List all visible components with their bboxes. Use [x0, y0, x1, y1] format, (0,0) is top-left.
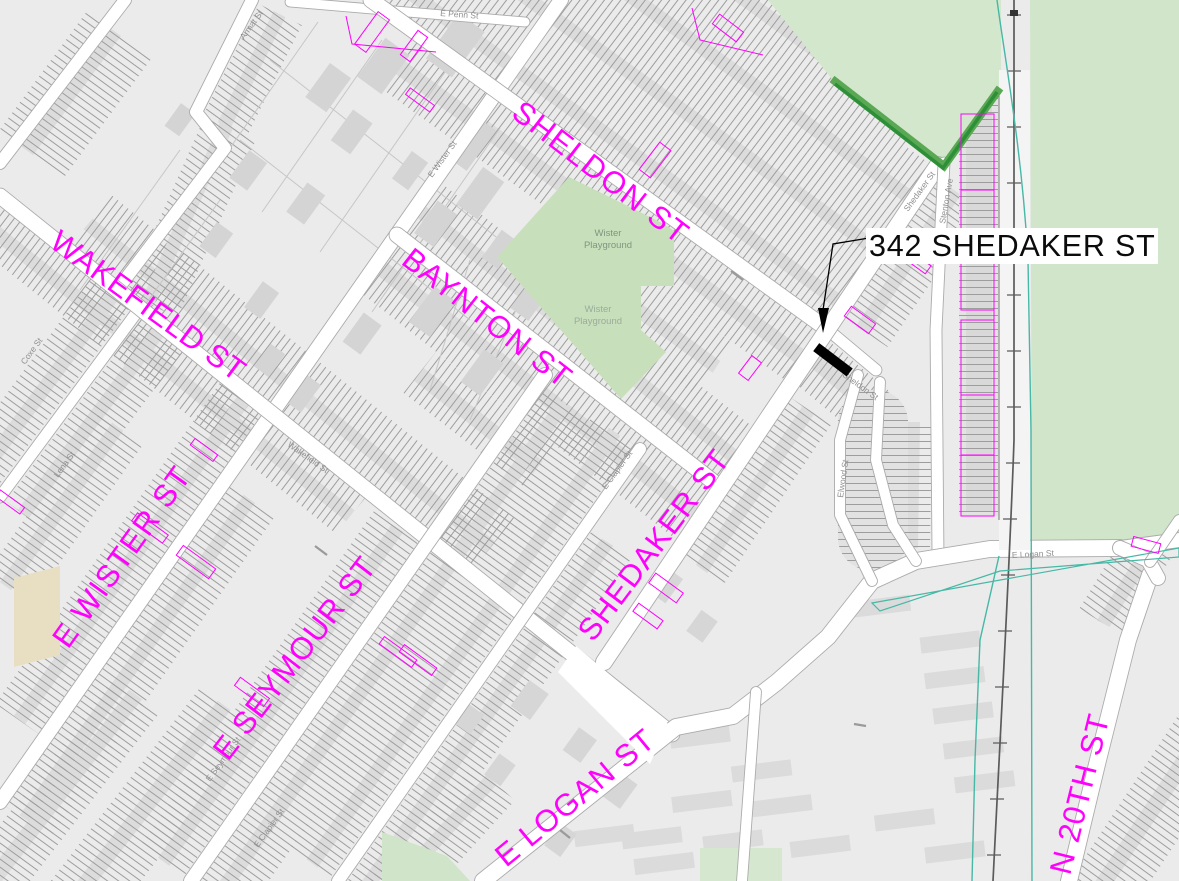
svg-text:Wister: Wister: [595, 228, 622, 239]
svg-text:Playground: Playground: [584, 240, 632, 251]
svg-text:Playground: Playground: [574, 316, 622, 327]
svg-text:Wister: Wister: [585, 304, 612, 315]
svg-text:342 SHEDAKER ST: 342 SHEDAKER ST: [869, 229, 1156, 263]
